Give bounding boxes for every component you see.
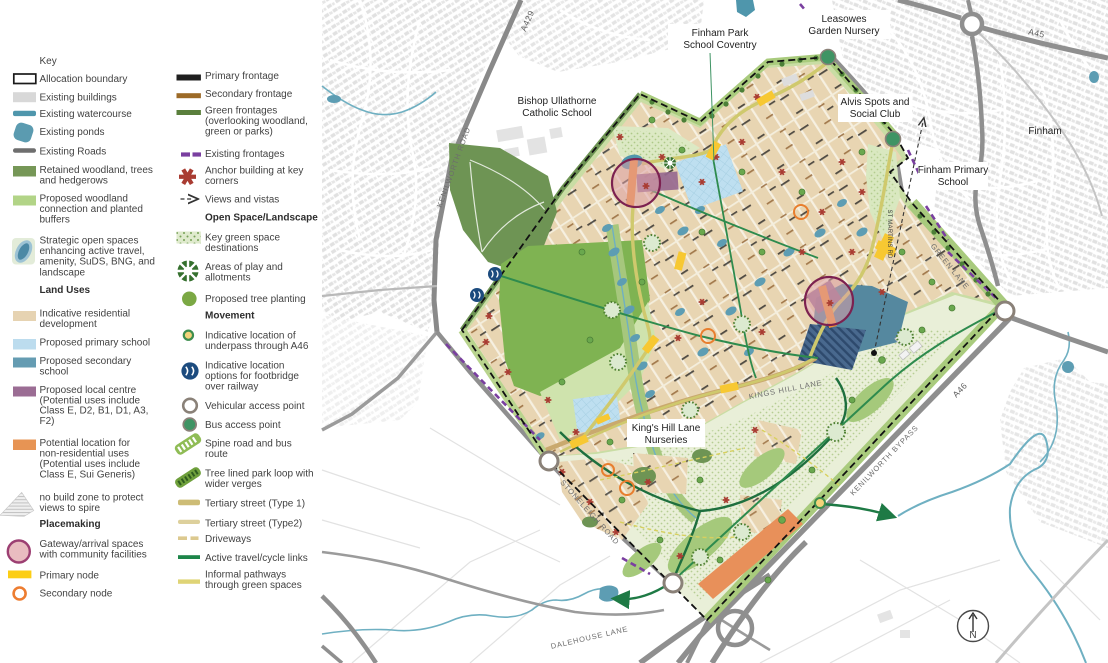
svg-text:Areas of play and: Areas of play and xyxy=(205,262,283,273)
svg-text:Retained woodland, trees: Retained woodland, trees xyxy=(40,165,153,176)
svg-text:N: N xyxy=(969,630,976,641)
svg-text:Nurseries: Nurseries xyxy=(645,435,688,446)
svg-text:Secondary node: Secondary node xyxy=(40,589,113,600)
svg-text:non-residential uses: non-residential uses xyxy=(40,449,130,460)
svg-text:Secondary frontage: Secondary frontage xyxy=(205,89,293,100)
svg-text:buffers: buffers xyxy=(40,215,70,226)
svg-text:green or parks): green or parks) xyxy=(205,126,273,137)
svg-text:and hedgerows: and hedgerows xyxy=(40,176,108,187)
svg-text:views to spire: views to spire xyxy=(40,503,101,514)
svg-text:Movement: Movement xyxy=(205,311,255,322)
svg-text:enhancing active travel,: enhancing active travel, xyxy=(40,246,145,257)
svg-text:Strategic open spaces: Strategic open spaces xyxy=(40,236,139,247)
svg-text:Key: Key xyxy=(40,56,57,67)
svg-text:Bishop Ullathorne: Bishop Ullathorne xyxy=(518,96,597,107)
svg-text:Existing frontages: Existing frontages xyxy=(205,149,285,160)
svg-text:Garden Nursery: Garden Nursery xyxy=(808,26,879,37)
svg-text:Primary frontage: Primary frontage xyxy=(205,71,279,82)
svg-text:Tree lined park loop with: Tree lined park loop with xyxy=(205,469,314,480)
svg-text:Proposed secondary: Proposed secondary xyxy=(40,356,132,367)
svg-text:amenity, SuDS, BNG, and: amenity, SuDS, BNG, and xyxy=(40,257,155,268)
svg-text:landscape: landscape xyxy=(40,268,86,279)
svg-text:School Coventry: School Coventry xyxy=(683,40,756,51)
svg-text:Views and vistas: Views and vistas xyxy=(205,195,279,206)
svg-text:Green frontages: Green frontages xyxy=(205,106,277,117)
svg-text:Vehicular access point: Vehicular access point xyxy=(205,401,305,412)
svg-text:Key green space: Key green space xyxy=(205,233,280,244)
svg-text:Existing watercourse: Existing watercourse xyxy=(40,109,133,120)
svg-text:Potential location for: Potential location for xyxy=(40,438,131,449)
svg-text:through green spaces: through green spaces xyxy=(205,580,302,591)
svg-text:Driveways: Driveways xyxy=(205,534,251,545)
svg-text:Indicative residential: Indicative residential xyxy=(40,309,131,320)
svg-text:Indicative location: Indicative location xyxy=(205,361,285,372)
svg-text:route: route xyxy=(205,449,228,460)
svg-text:F2): F2) xyxy=(40,416,55,427)
svg-text:Finham Primary: Finham Primary xyxy=(918,165,989,176)
svg-text:Existing ponds: Existing ponds xyxy=(40,127,105,138)
svg-text:ST MARTINS RD: ST MARTINS RD xyxy=(886,209,892,259)
svg-text:Bus access point: Bus access point xyxy=(205,420,281,431)
svg-text:Proposed primary school: Proposed primary school xyxy=(40,338,151,349)
svg-text:Existing buildings: Existing buildings xyxy=(40,93,117,104)
svg-text:Anchor building at key: Anchor building at key xyxy=(205,166,303,177)
svg-text:Alvis Spots and: Alvis Spots and xyxy=(841,97,910,108)
svg-text:Class E, Sui Generis): Class E, Sui Generis) xyxy=(40,470,136,481)
svg-text:connection and planted: connection and planted xyxy=(40,204,143,215)
svg-text:Class E, D2, B1, D1, A3,: Class E, D2, B1, D1, A3, xyxy=(40,406,149,417)
svg-text:Finham Park: Finham Park xyxy=(692,28,750,39)
svg-text:over railway: over railway xyxy=(205,382,258,393)
svg-text:allotments: allotments xyxy=(205,273,251,284)
svg-text:(Potential uses include: (Potential uses include xyxy=(40,459,141,470)
svg-text:Gateway/arrival spaces: Gateway/arrival spaces xyxy=(40,539,144,550)
svg-text:Proposed local centre: Proposed local centre xyxy=(40,385,137,396)
svg-text:Informal pathways: Informal pathways xyxy=(205,570,286,581)
svg-text:Leasowes: Leasowes xyxy=(821,14,866,25)
svg-text:Catholic School: Catholic School xyxy=(522,108,591,119)
svg-text:Finham: Finham xyxy=(1028,126,1061,137)
svg-text:Tertiary street (Type2): Tertiary street (Type2) xyxy=(205,519,302,530)
svg-text:wider verges: wider verges xyxy=(204,479,262,490)
svg-text:options for footbridge: options for footbridge xyxy=(205,371,299,382)
svg-text:Primary node: Primary node xyxy=(40,571,100,582)
svg-text:Tertiary street (Type 1): Tertiary street (Type 1) xyxy=(205,499,305,510)
svg-text:Proposed tree planting: Proposed tree planting xyxy=(205,294,306,305)
svg-text:school: school xyxy=(40,367,69,378)
svg-text:King's Hill Lane: King's Hill Lane xyxy=(632,423,701,434)
svg-text:Existing Roads: Existing Roads xyxy=(40,147,107,158)
svg-text:Open Space/Landscape: Open Space/Landscape xyxy=(205,213,318,224)
svg-text:Indicative location of: Indicative location of xyxy=(205,331,296,342)
svg-text:destinations: destinations xyxy=(205,243,258,254)
svg-text:Placemaking: Placemaking xyxy=(40,519,101,530)
svg-text:Land Uses: Land Uses xyxy=(40,285,91,296)
svg-text:corners: corners xyxy=(205,176,238,187)
svg-text:Active travel/cycle links: Active travel/cycle links xyxy=(205,553,308,564)
svg-text:underpass through A46: underpass through A46 xyxy=(205,341,309,352)
svg-text:Allocation boundary: Allocation boundary xyxy=(40,74,128,85)
svg-text:Spine road and bus: Spine road and bus xyxy=(205,439,292,450)
svg-text:(overlooking woodland,: (overlooking woodland, xyxy=(205,116,308,127)
svg-text:Social Club: Social Club xyxy=(850,109,901,120)
svg-text:School: School xyxy=(938,177,969,188)
svg-text:development: development xyxy=(40,319,97,330)
svg-text:with community facilities: with community facilities xyxy=(39,550,147,561)
svg-text:no build zone to protect: no build zone to protect xyxy=(40,493,144,504)
svg-text:Proposed woodland: Proposed woodland xyxy=(40,194,128,205)
